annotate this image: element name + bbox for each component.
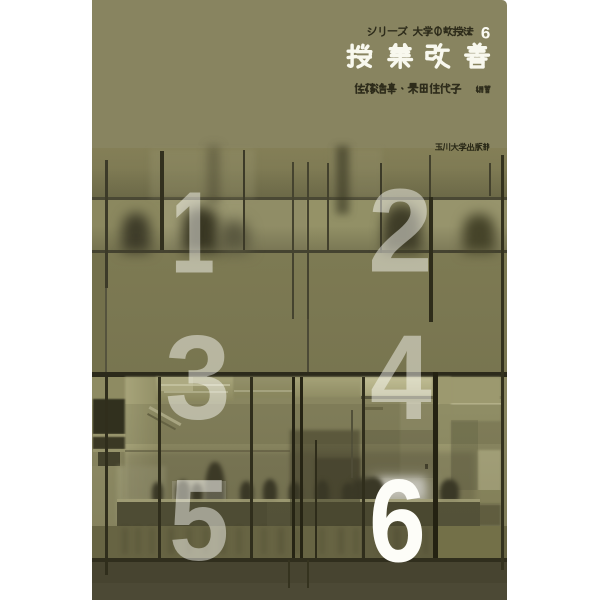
- svg-text:6: 6: [481, 23, 490, 42]
